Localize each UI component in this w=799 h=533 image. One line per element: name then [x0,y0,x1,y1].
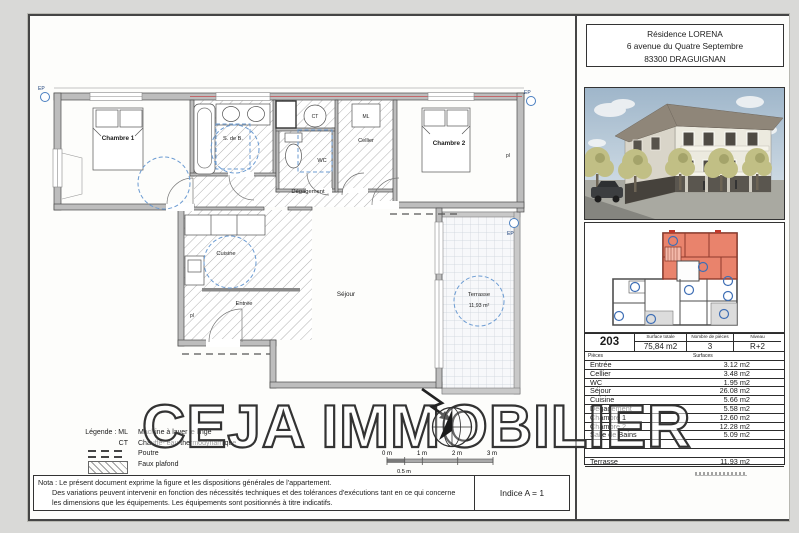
poutre-symbol-icon [88,450,126,458]
room-label-chambre1: Chambre 1 [102,135,135,142]
fine-print-mark [695,472,747,476]
table-row [585,439,784,448]
room-label-pl-ch2: pl [506,153,510,159]
address-city: 83300 DRAGUIGNAN [587,53,783,65]
key-plan [584,222,785,333]
nota-box: Nota : Le présent document exprime la fi… [33,475,570,511]
duct-shaft [276,101,296,128]
legend-faux-plafond: Faux plafond [138,461,308,474]
table-row: Dégagement5.58 m2 [585,404,784,413]
terrasse-area-label: 11,93 m² [469,303,490,309]
legend: Légende : ML Machine à laver le linge CT… [50,429,308,474]
surface-table-subheader: Pièces Surfaces [585,351,784,360]
faux-plafond-symbol-icon [88,461,128,474]
niveau-label: Niveau [734,334,781,342]
building-rendering [584,87,785,220]
address-street: 6 avenue du Quatre Septembre [587,40,783,52]
table-row: WC1.95 m2 [585,378,784,387]
unit-table-rows: Entrée3.12 m2Cellier3.48 m2WC1.95 m2Séjo… [585,360,784,467]
table-row: Entrée3.12 m2 [585,360,784,369]
scale-0m: 0 m [382,451,392,457]
room-label-wc: WC [317,158,326,164]
room-label-ml: ML [363,114,370,120]
room-label-sejour: Séjour [337,291,355,298]
table-row: Cellier3.48 m2 [585,369,784,378]
legend-ct-label: CT [50,440,128,449]
table-row: Séjour26.08 m2 [585,386,784,395]
residence-name: Résidence LORENA [587,28,783,40]
room-label-cuisine: Cuisine [216,251,235,257]
nb-pieces-value: 3 [687,342,733,352]
address-box: Résidence LORENA 6 avenue du Quatre Sept… [586,24,784,67]
surface-totale-label: Surface totale [635,334,686,342]
room-label-degagement: Dégagement [291,189,325,195]
nb-pieces-label: Nombre de pièces [687,334,733,342]
building-rendering-image [585,88,784,219]
ep-label: EP [507,231,514,237]
table-row: Chambre 112.60 m2 [585,413,784,422]
room-label-chambre2: Chambre 2 [433,140,466,147]
room-label-terrasse: Terrasse [468,292,490,298]
north-compass-icon [408,383,496,471]
surface-totale-value: 75,84 m2 [635,342,686,352]
col-pieces: Pièces [585,353,603,359]
table-row: Salle de Bains5.09 m2 [585,430,784,439]
room-label-sdb: S. de B. [223,136,243,142]
table-row: Terrasse11.93 m2 [585,457,784,467]
legend-poutre: Poutre [138,450,308,459]
nota-line2: Des variations peuvent intervenir en fon… [38,488,470,498]
key-plan-drawing [585,223,784,332]
table-row: Cuisine5.66 m2 [585,395,784,404]
table-row: Chambre 212.28 m2 [585,422,784,431]
room-label-pl-entree: pl [190,313,194,319]
room-label-cellier: Cellier [358,138,374,144]
legend-ml-desc: Machine à laver le linge [138,429,308,438]
surface-table: 203 Surface totale 75,84 m2 Nombre de pi… [584,333,785,465]
nota-line3: les dimensions que les équipements. Les … [38,498,470,508]
ep-label: EP [38,86,45,92]
legend-ct-desc: Chauffe- eau thermodynamique [138,440,308,449]
plan-sheet: EP EP EP Chambre 1 S. de B. CT WC Cellie… [28,14,789,521]
room-label-ct: CT [312,114,319,120]
right-panel: Résidence LORENA 6 avenue du Quatre Sept… [575,16,789,519]
unit-number: 203 [585,334,635,352]
nota-line1: Nota : Le présent document exprime la fi… [38,478,470,488]
table-row [585,448,784,457]
indice-cell: Indice A = 1 [474,476,569,510]
legend-title: Légende : ML [50,429,128,438]
ep-label: EP [524,90,531,96]
niveau-value: R+2 [734,342,781,352]
room-label-entree: Entrée [235,301,252,307]
surface-table-header: 203 Surface totale 75,84 m2 Nombre de pi… [585,334,784,351]
col-surfaces: Surfaces [693,352,713,360]
